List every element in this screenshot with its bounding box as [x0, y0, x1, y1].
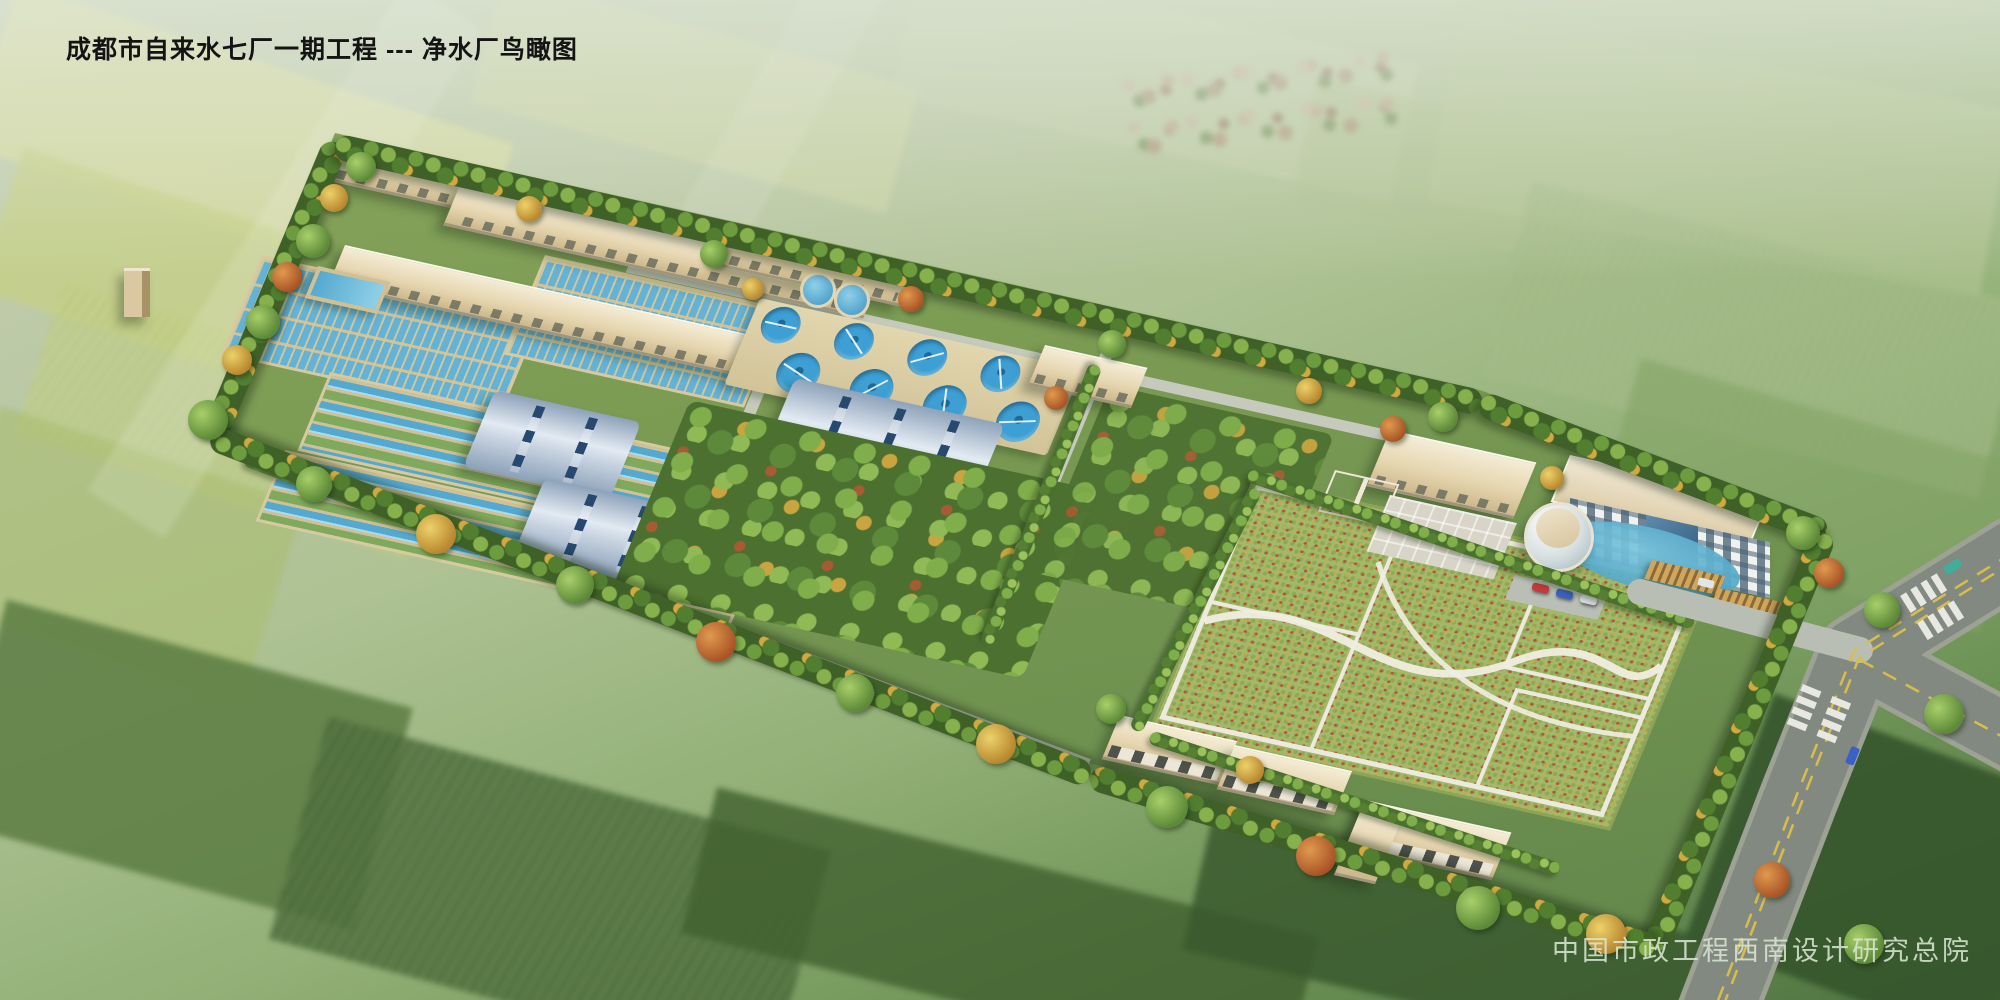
tree: [1814, 558, 1844, 588]
tree: [1098, 330, 1126, 358]
tree: [742, 278, 764, 300]
design-institute-credit: 中国市政工程西南设计研究总院: [1552, 929, 1972, 968]
tree: [1924, 694, 1964, 734]
tree: [516, 196, 542, 222]
tree: [1380, 416, 1406, 442]
tree: [1296, 378, 1322, 404]
tree: [700, 240, 728, 268]
tree: [898, 286, 924, 312]
tree: [1044, 386, 1068, 410]
tree: [1456, 886, 1500, 930]
tree: [1428, 402, 1458, 432]
tree: [296, 224, 330, 258]
tree: [416, 514, 456, 554]
tree: [976, 724, 1016, 764]
page-title: 成都市自来水七厂一期工程 --- 净水厂鸟瞰图: [66, 30, 578, 66]
tree: [296, 466, 332, 502]
tree: [1754, 862, 1790, 898]
intake-tower: [124, 268, 150, 317]
tree: [1236, 756, 1264, 784]
tree: [1540, 466, 1564, 490]
tree: [556, 566, 594, 604]
tree: [222, 345, 252, 375]
tree: [1096, 694, 1126, 724]
tree: [1146, 786, 1188, 828]
tree: [188, 400, 228, 440]
tree: [320, 184, 348, 212]
tree: [272, 262, 302, 292]
tree: [696, 622, 736, 662]
tree: [1296, 836, 1336, 876]
tree: [1786, 516, 1820, 550]
tree: [836, 674, 874, 712]
rendering-canvas: 成都市自来水七厂一期工程 --- 净水厂鸟瞰图 中国市政工程西南设计研究总院: [0, 0, 2000, 1000]
tree: [1864, 592, 1900, 628]
tree: [246, 305, 280, 339]
tree: [346, 152, 376, 182]
